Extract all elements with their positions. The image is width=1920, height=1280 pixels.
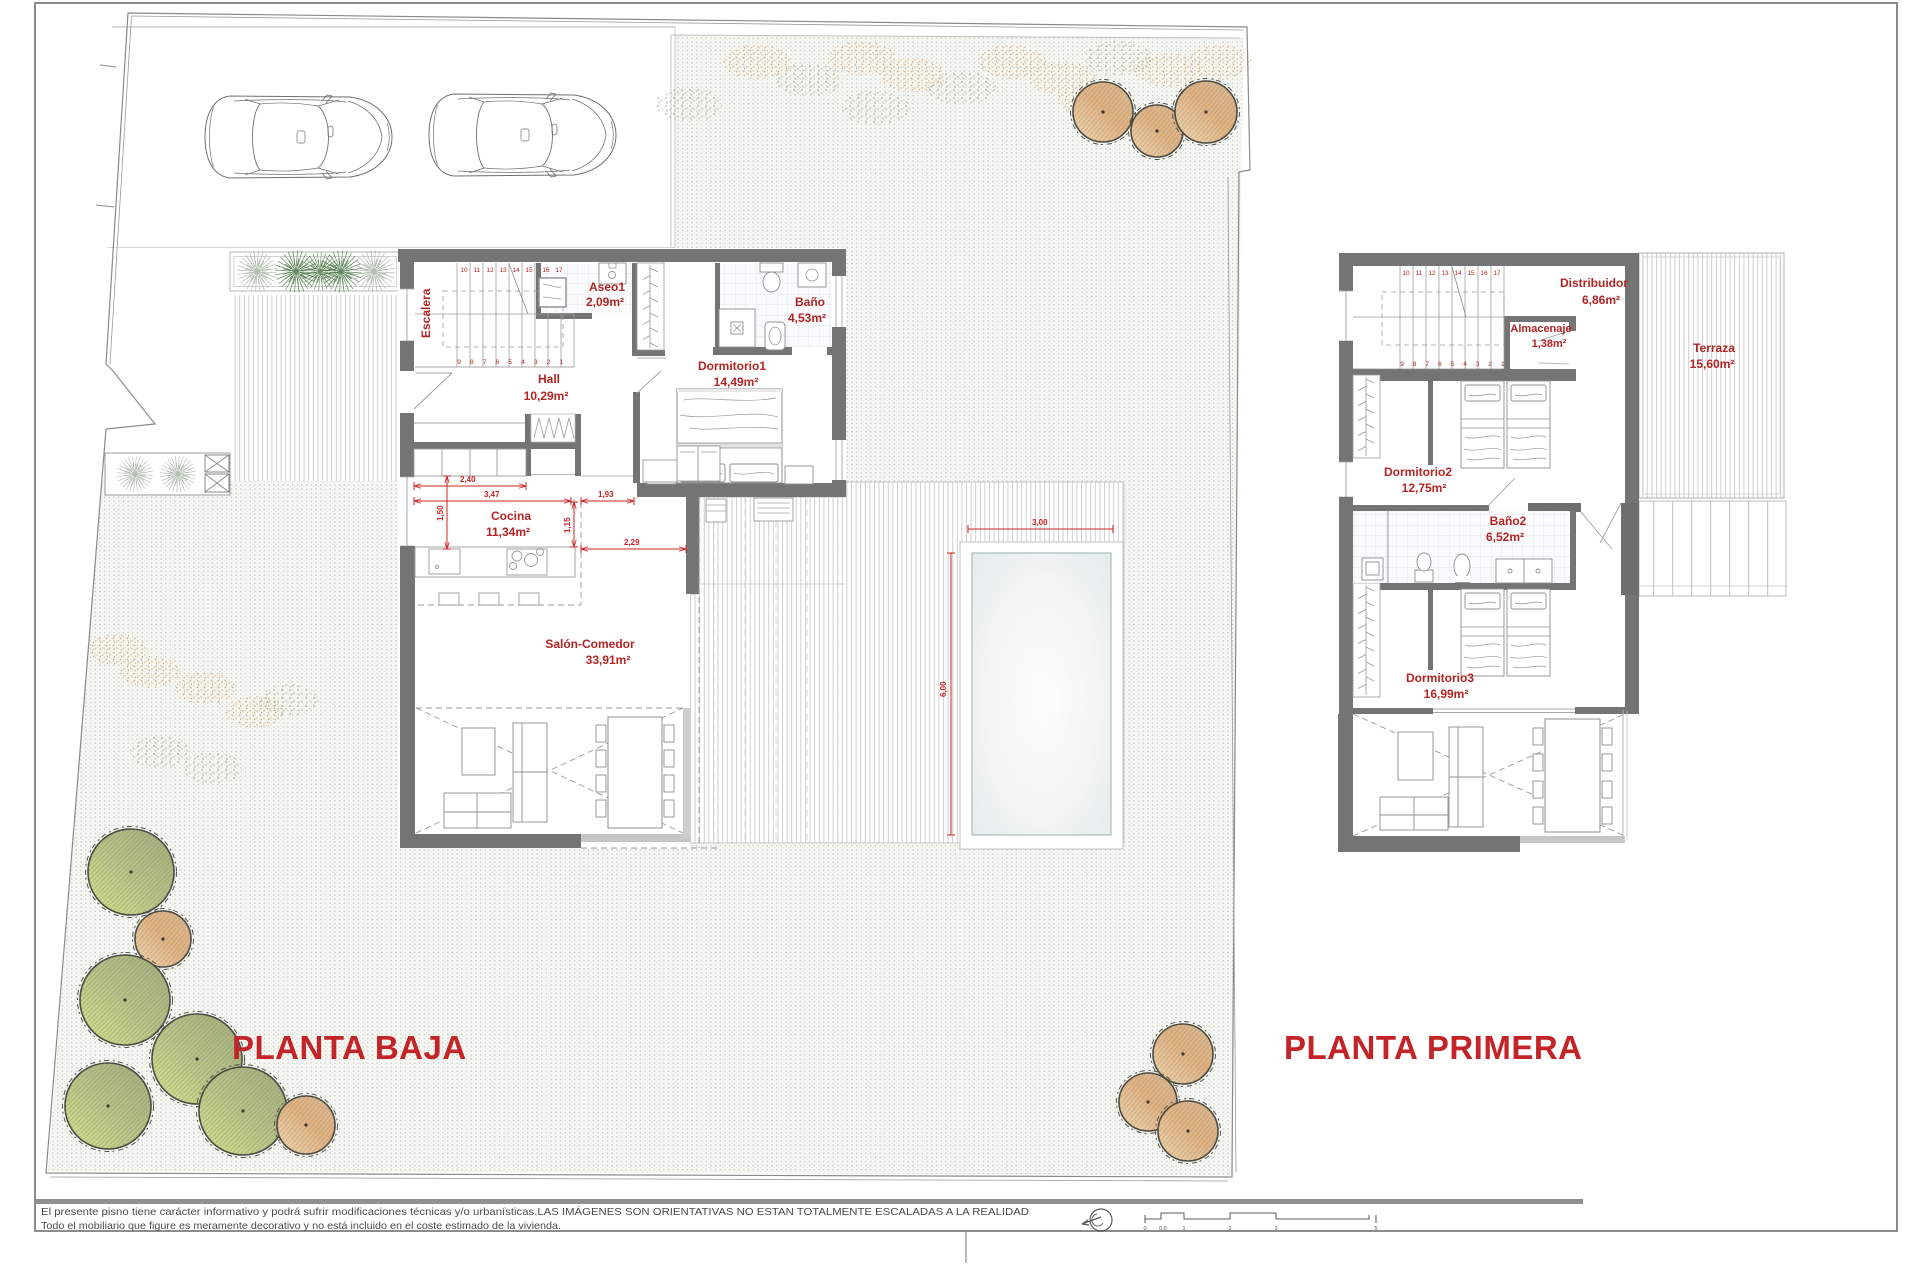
- svg-text:16: 16: [1480, 270, 1488, 277]
- svg-text:6: 6: [496, 359, 500, 366]
- svg-text:13: 13: [1441, 270, 1449, 277]
- svg-text:12: 12: [1428, 270, 1436, 277]
- svg-text:17: 17: [555, 267, 563, 274]
- svg-text:Dormitorio2: Dormitorio2: [1384, 465, 1452, 479]
- svg-text:11,34m²: 11,34m²: [486, 525, 530, 539]
- svg-text:5: 5: [1451, 361, 1455, 368]
- svg-text:15: 15: [525, 267, 533, 274]
- svg-text:PLANTA BAJA: PLANTA BAJA: [232, 1029, 467, 1066]
- svg-text:15,60m²: 15,60m²: [1690, 357, 1735, 371]
- svg-text:10: 10: [1402, 270, 1410, 277]
- svg-text:Baño: Baño: [795, 295, 825, 309]
- svg-text:Dormitorio1: Dormitorio1: [698, 359, 766, 373]
- svg-text:8: 8: [470, 359, 474, 366]
- svg-text:1,93: 1,93: [598, 490, 614, 499]
- svg-text:5: 5: [508, 359, 512, 366]
- svg-text:9: 9: [457, 359, 461, 366]
- svg-text:1,15: 1,15: [563, 517, 572, 533]
- svg-text:6,52m²: 6,52m²: [1486, 530, 1524, 544]
- svg-text:Todo el mobiliario que figure: Todo el mobiliario que figure es meramen…: [41, 1220, 561, 1232]
- svg-text:2: 2: [547, 359, 551, 366]
- svg-text:3: 3: [534, 359, 538, 366]
- svg-text:0: 0: [1143, 1226, 1146, 1232]
- svg-text:3,00: 3,00: [1032, 518, 1048, 527]
- svg-text:Terraza: Terraza: [1693, 341, 1735, 355]
- svg-text:17: 17: [1493, 270, 1501, 277]
- svg-text:11: 11: [474, 267, 481, 274]
- svg-text:PLANTA PRIMERA: PLANTA PRIMERA: [1284, 1029, 1583, 1066]
- svg-text:6,86m²: 6,86m²: [1582, 293, 1620, 307]
- svg-text:Aseo1: Aseo1: [589, 280, 625, 294]
- svg-text:2,09m²: 2,09m²: [586, 295, 624, 309]
- svg-text:11: 11: [1416, 270, 1423, 277]
- svg-text:Salón-Comedor: Salón-Comedor: [545, 637, 635, 651]
- svg-text:10,29m²: 10,29m²: [524, 389, 569, 403]
- svg-text:1,38m²: 1,38m²: [1532, 338, 1567, 350]
- svg-text:6,00: 6,00: [939, 681, 948, 697]
- svg-text:16,99m²: 16,99m²: [1424, 687, 1469, 701]
- svg-text:3: 3: [1274, 1226, 1277, 1232]
- svg-text:Escalera: Escalera: [419, 288, 433, 338]
- svg-text:14,49m²: 14,49m²: [714, 375, 759, 389]
- svg-text:6: 6: [1438, 361, 1442, 368]
- svg-text:0.5: 0.5: [1159, 1226, 1167, 1232]
- svg-text:14: 14: [1454, 270, 1462, 277]
- svg-text:4,53m²: 4,53m²: [788, 311, 826, 325]
- svg-text:Cocina: Cocina: [491, 509, 531, 523]
- svg-text:14: 14: [512, 267, 520, 274]
- svg-text:5: 5: [1374, 1226, 1377, 1232]
- svg-text:Hall: Hall: [538, 372, 560, 386]
- svg-text:3,47: 3,47: [484, 490, 500, 499]
- svg-text:15: 15: [1467, 270, 1475, 277]
- svg-text:13: 13: [499, 267, 507, 274]
- svg-text:7: 7: [483, 359, 487, 366]
- svg-text:12,75m²: 12,75m²: [1402, 481, 1447, 495]
- svg-text:12: 12: [486, 267, 494, 274]
- svg-text:8: 8: [1413, 361, 1417, 368]
- svg-text:9: 9: [1400, 361, 1404, 368]
- svg-text:1,50: 1,50: [436, 505, 445, 521]
- svg-text:2: 2: [1488, 361, 1492, 368]
- svg-text:2,40: 2,40: [460, 475, 476, 484]
- svg-text:7: 7: [1425, 361, 1429, 368]
- svg-text:El presente pisno tiene carác: El presente pisno tiene carácter informa…: [41, 1205, 1029, 1218]
- svg-text:4: 4: [521, 359, 525, 366]
- svg-text:2,29: 2,29: [624, 538, 640, 547]
- svg-text:Almacenaje: Almacenaje: [1510, 323, 1571, 335]
- svg-text:Dormitorio3: Dormitorio3: [1406, 671, 1474, 685]
- svg-text:1: 1: [1182, 1226, 1185, 1232]
- svg-text:10: 10: [460, 267, 468, 274]
- svg-text:2: 2: [1228, 1226, 1231, 1232]
- svg-text:1: 1: [560, 359, 564, 366]
- svg-text:Baño2: Baño2: [1490, 514, 1527, 528]
- svg-text:Distribuidor: Distribuidor: [1560, 276, 1628, 290]
- svg-text:1: 1: [1501, 361, 1505, 368]
- svg-text:16: 16: [542, 267, 550, 274]
- svg-text:4: 4: [1463, 361, 1467, 368]
- svg-text:3: 3: [1476, 361, 1480, 368]
- svg-text:33,91m²: 33,91m²: [586, 653, 631, 667]
